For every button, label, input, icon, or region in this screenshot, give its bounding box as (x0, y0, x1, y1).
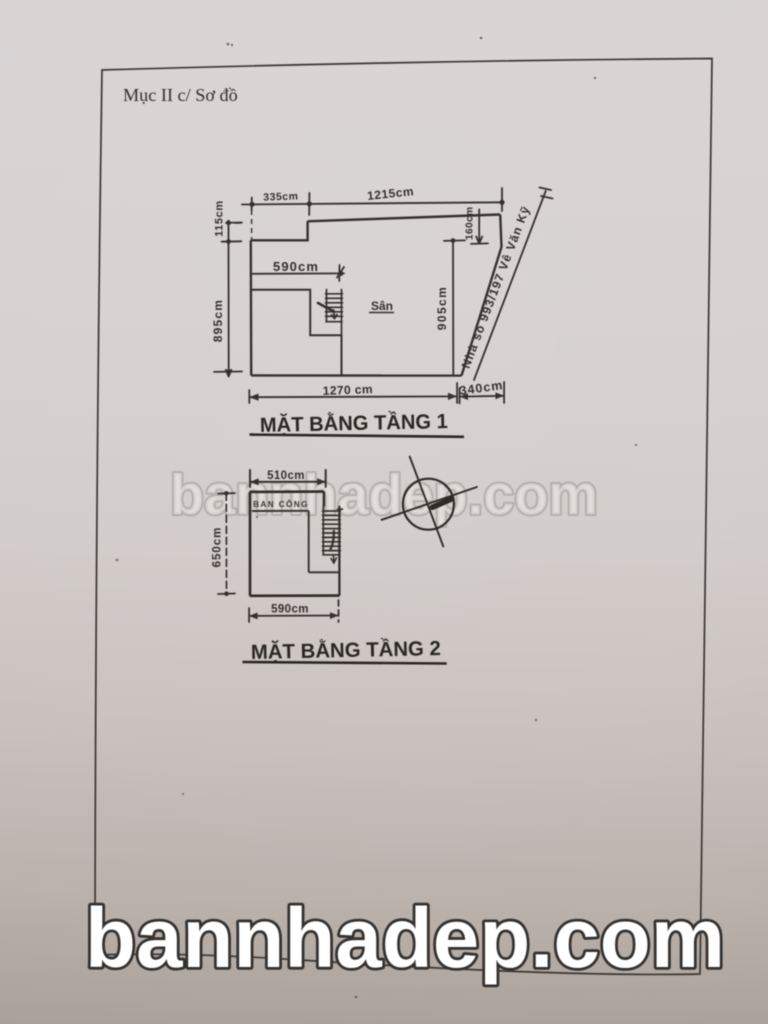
svg-text:590cm: 590cm (273, 259, 319, 274)
svg-text:650cm: 650cm (212, 527, 224, 568)
svg-text:335cm: 335cm (263, 190, 299, 203)
svg-text:MẶT BẰNG TẦNG 1: MẶT BẰNG TẦNG 1 (260, 409, 448, 437)
svg-text:905cm: 905cm (435, 286, 449, 330)
svg-text:Mục II c/ Sơ đồ: Mục II c/ Sơ đồ (123, 85, 238, 105)
svg-text:895cm: 895cm (211, 299, 225, 342)
svg-text:1215cm: 1215cm (366, 184, 414, 203)
svg-text:MẶT BẰNG TẦNG 2: MẶT BẰNG TẦNG 2 (251, 636, 441, 664)
svg-text:590cm: 590cm (271, 604, 309, 616)
svg-text:160cm: 160cm (465, 206, 476, 240)
svg-text:115cm: 115cm (214, 200, 226, 237)
svg-text:1270 cm: 1270 cm (323, 382, 374, 398)
svg-text:510cm: 510cm (267, 470, 305, 482)
svg-text:BAN CÔNG: BAN CÔNG (253, 498, 309, 509)
svg-text:bannhadep.com: bannhadep.com (85, 891, 725, 985)
svg-text:bannhadep.com: bannhadep.com (170, 463, 598, 527)
svg-text:Sân: Sân (371, 299, 393, 313)
